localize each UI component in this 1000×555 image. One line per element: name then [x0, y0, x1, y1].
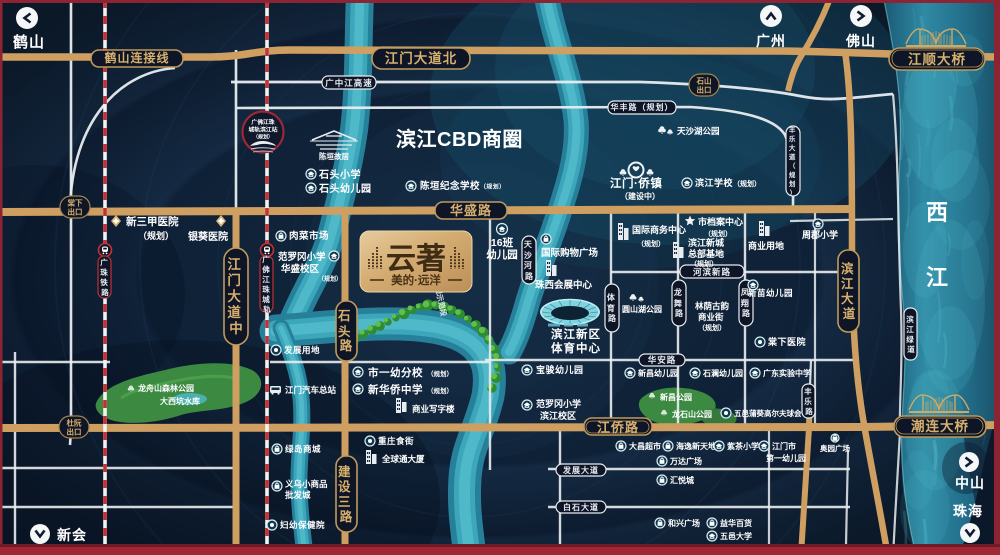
svg-text:丰 乐 路: 丰 乐 路	[804, 386, 814, 416]
svg-text:潮连大桥: 潮连大桥	[911, 418, 969, 434]
svg-text:海逸新天地: 海逸新天地	[676, 441, 716, 451]
svg-text:国际商务中心: 国际商务中心	[632, 224, 686, 235]
svg-text:商业街: 商业街	[698, 312, 724, 322]
svg-text:银葵医院: 银葵医院	[188, 230, 228, 243]
svg-text:（规划）: （规划）	[138, 230, 174, 241]
svg-text:广东实验中学: 广东实验中学	[763, 368, 811, 378]
svg-text:广中江高速: 广中江高速	[325, 78, 373, 88]
svg-text:新昌公园: 新昌公园	[660, 392, 692, 402]
svg-text:出口: 出口	[67, 427, 82, 437]
svg-text:石头小学: 石头小学	[318, 168, 361, 181]
svg-text:江门市: 江门市	[772, 441, 796, 451]
svg-text:（规划）: （规划）	[427, 369, 453, 378]
svg-text:新昌幼儿园: 新昌幼儿园	[638, 368, 678, 378]
svg-text:新苗幼儿园: 新苗幼儿园	[748, 288, 793, 298]
svg-text:市档案中心: 市档案中心	[698, 216, 743, 227]
svg-text:河滨新路: 河滨新路	[693, 267, 731, 277]
svg-text:市一幼分校: 市一幼分校	[368, 366, 423, 379]
svg-text:城轨滨江站: 城轨滨江站	[249, 126, 278, 134]
svg-text:出口: 出口	[697, 85, 712, 95]
svg-text:滨江CBD商圈: 滨江CBD商圈	[396, 127, 523, 151]
svg-text:杜阮: 杜阮	[67, 418, 82, 428]
svg-text:万达广场: 万达广场	[669, 456, 702, 466]
svg-text:滨江学校: 滨江学校	[695, 177, 734, 188]
svg-text:重庄食街: 重庄食街	[378, 436, 414, 446]
svg-text:西: 西	[926, 200, 950, 225]
svg-text:江顺大桥: 江顺大桥	[908, 51, 966, 67]
svg-text:佛山: 佛山	[845, 33, 876, 49]
svg-text:五邑蒲葵高尔夫球会: 五邑蒲葵高尔夫球会	[734, 408, 802, 418]
svg-text:大西坑水库: 大西坑水库	[160, 396, 200, 406]
svg-text:华安路: 华安路	[648, 355, 677, 365]
svg-text:鹤山: 鹤山	[13, 33, 45, 51]
svg-text:江: 江	[926, 265, 950, 290]
svg-text:石澜幼儿园: 石澜幼儿园	[702, 368, 743, 378]
svg-text:天沙湖公园: 天沙湖公园	[677, 126, 720, 136]
svg-text:总部基地: 总部基地	[688, 248, 724, 259]
svg-text:龙舟山森林公园: 龙舟山森林公园	[137, 383, 194, 393]
svg-text:林荫古韵: 林荫古韵	[695, 301, 730, 311]
svg-text:体育中心: 体育中心	[551, 341, 601, 355]
svg-text:广州: 广州	[756, 33, 786, 49]
svg-text:龙 舞 路: 龙 舞 路	[673, 287, 684, 318]
svg-text:石头幼儿园: 石头幼儿园	[318, 182, 372, 195]
svg-text:出口: 出口	[68, 207, 83, 217]
svg-text:华盛路: 华盛路	[450, 203, 492, 218]
svg-text:（建设中）: （建设中）	[620, 191, 660, 201]
svg-text:绿岛商城: 绿岛商城	[285, 444, 321, 454]
svg-text:江门汽车总站: 江门汽车总站	[285, 385, 337, 395]
svg-text:批发城: 批发城	[285, 490, 311, 500]
svg-text:新三甲医院: 新三甲医院	[126, 215, 179, 228]
svg-text:16班: 16班	[491, 236, 514, 249]
svg-text:广佛江珠: 广佛江珠	[251, 118, 274, 126]
svg-text:义乌小商品: 义乌小商品	[284, 479, 328, 489]
svg-text:江 门 大 道 中: 江 门 大 道 中	[227, 256, 244, 336]
svg-text:圆山湖公园: 圆山湖公园	[622, 304, 662, 314]
svg-text:滨江新城: 滨江新城	[688, 237, 724, 248]
svg-text:滨江新区: 滨江新区	[551, 327, 601, 341]
svg-text:大昌超市: 大昌超市	[629, 441, 661, 451]
svg-text:和兴广场: 和兴广场	[668, 518, 700, 528]
svg-text:滨江校区: 滨江校区	[540, 410, 576, 421]
svg-text:珠海: 珠海	[953, 503, 983, 519]
svg-text:天 沙 河 路: 天 沙 河 路	[524, 240, 534, 281]
svg-text:（规划）: （规划）	[690, 259, 718, 268]
svg-text:（规划）: （规划）	[698, 323, 726, 332]
svg-text:美的·远洋: 美的·远洋	[391, 273, 441, 287]
svg-text:商业写字楼: 商业写字楼	[412, 404, 455, 414]
svg-text:国际购物广场: 国际购物广场	[541, 247, 599, 259]
svg-text:石山: 石山	[696, 76, 712, 86]
svg-text:陈垣故居: 陈垣故居	[319, 151, 349, 161]
svg-text:棠下医院: 棠下医院	[767, 336, 806, 347]
svg-text:鹤山连接线: 鹤山连接线	[104, 50, 169, 65]
svg-text:江门大道北: 江门大道北	[385, 50, 458, 66]
svg-text:（规划）: （规划）	[704, 229, 732, 238]
svg-text:肉菜市场: 肉菜市场	[289, 230, 329, 242]
svg-text:范罗冈小学: 范罗冈小学	[536, 398, 581, 409]
svg-text:妇幼保健院: 妇幼保健院	[279, 520, 325, 530]
svg-text:华丰路（规划）: 华丰路（规划）	[611, 102, 674, 112]
svg-text:发展大道: 发展大道	[562, 465, 599, 475]
svg-text:周郡小学: 周郡小学	[802, 229, 838, 240]
svg-text:第一幼儿园: 第一幼儿园	[766, 453, 806, 463]
svg-text:（规划）: （规划）	[253, 134, 273, 141]
svg-text:新会: 新会	[57, 527, 87, 543]
svg-text:中山: 中山	[955, 475, 985, 491]
svg-text:（规划）: （规划）	[637, 239, 665, 248]
svg-text:宝骏幼儿园: 宝骏幼儿园	[536, 364, 584, 375]
svg-text:白石大道: 白石大道	[563, 502, 599, 512]
svg-text:（规划）: （规划）	[318, 275, 342, 283]
svg-text:体 育 路: 体 育 路	[607, 292, 617, 323]
svg-text:棠下: 棠下	[67, 198, 83, 208]
svg-text:江门·侨镇: 江门·侨镇	[610, 176, 662, 190]
svg-text:汇悦城: 汇悦城	[670, 475, 694, 485]
svg-text:范罗冈小学: 范罗冈小学	[278, 251, 326, 263]
svg-text:商业用地: 商业用地	[748, 240, 784, 251]
svg-text:益华百货: 益华百货	[720, 518, 752, 528]
svg-text:江侨路: 江侨路	[597, 420, 639, 435]
svg-text:全球通大厦: 全球通大厦	[381, 454, 425, 464]
svg-text:新华侨中学: 新华侨中学	[368, 383, 423, 396]
svg-text:华盛校区: 华盛校区	[281, 263, 320, 275]
svg-text:（规划）: （规划）	[733, 179, 761, 188]
svg-text:石 头 路: 石 头 路	[337, 309, 354, 353]
svg-text:珠西会展中心: 珠西会展中心	[535, 279, 593, 291]
svg-text:五邑大学: 五邑大学	[720, 531, 752, 541]
svg-text:幼儿园: 幼儿园	[486, 248, 518, 261]
svg-text:奥园广场: 奥园广场	[819, 443, 850, 453]
svg-text:云著: 云著	[386, 243, 446, 276]
svg-text:发展用地: 发展用地	[283, 345, 320, 355]
svg-text:龙石山公园: 龙石山公园	[671, 409, 712, 419]
svg-text:（规划）: （规划）	[427, 386, 453, 395]
svg-text:紫茶小学: 紫茶小学	[727, 441, 759, 451]
